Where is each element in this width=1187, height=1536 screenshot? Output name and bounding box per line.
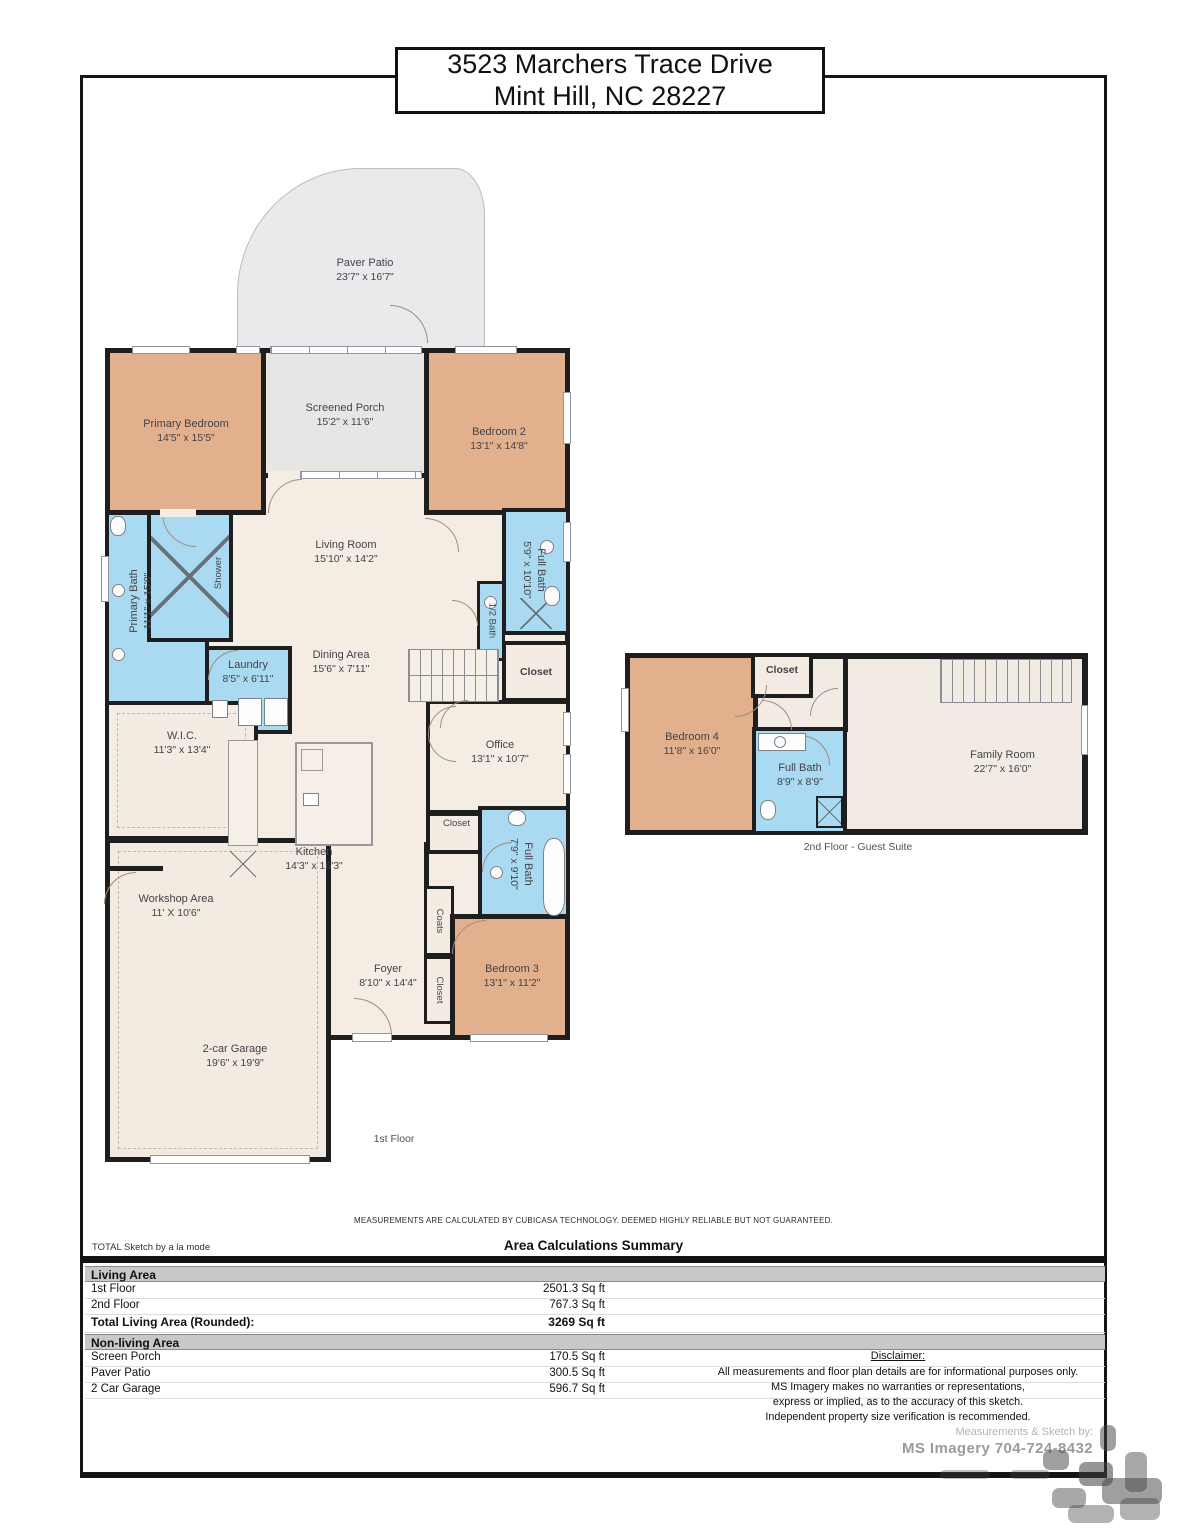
watermark-fragment xyxy=(1125,1452,1147,1492)
disclaimer-line: All measurements and floor plan details … xyxy=(700,1365,1096,1380)
sink xyxy=(774,736,786,748)
bathtub xyxy=(543,838,565,916)
disclaimer-line: express or implied, as to the accuracy o… xyxy=(700,1395,1096,1410)
label-foyer: Foyer 8'10" x 14'4" xyxy=(318,962,458,990)
front-door-opening xyxy=(352,1033,392,1042)
watermark-fragment xyxy=(1120,1498,1160,1520)
address-title-box: 3523 Marchers Trace Drive Mint Hill, NC … xyxy=(395,47,825,114)
window xyxy=(101,556,109,602)
label-full-bath-lower: Full Bath 7'9" x 9'10" xyxy=(507,808,535,920)
dryer xyxy=(264,698,288,726)
label-closet-hall: Closet xyxy=(502,666,570,680)
label-workshop: Workshop Area 11' X 10'6" xyxy=(106,892,246,920)
sink xyxy=(112,584,125,597)
disclaimer-line: Independent property size verification i… xyxy=(700,1410,1096,1425)
label-living-room: Living Room 15'10" x 14'2" xyxy=(276,538,416,566)
label-full-bath-upper: Full Bath 5'9" x 10'10" xyxy=(520,512,548,628)
label-first-floor: 1st Floor xyxy=(352,1133,436,1147)
watermark-fragment xyxy=(1068,1505,1114,1523)
label-laundry: Laundry 8'5" x 6'11" xyxy=(208,658,288,686)
door-gap xyxy=(422,520,430,556)
label-screened-porch: Screened Porch 15'2" x 11'6" xyxy=(275,401,415,429)
label-bedroom-4: Bedroom 4 11'8" x 16'0" xyxy=(628,730,756,758)
label-paver-patio: Paver Patio 23'7" x 16'7" xyxy=(280,256,450,284)
floorplan-sheet: 3523 Marchers Trace Drive Mint Hill, NC … xyxy=(0,0,1187,1536)
credit-value: MS Imagery 704-724-8432 xyxy=(700,1440,1093,1457)
window xyxy=(470,1034,548,1042)
stair-rail xyxy=(410,675,497,676)
label-closet-2nd: Closet xyxy=(751,664,813,678)
label-closet-office: Closet xyxy=(426,818,487,831)
window xyxy=(1081,705,1088,755)
watermark-fragment xyxy=(940,1470,990,1479)
window xyxy=(621,688,629,732)
watermark-fragment xyxy=(1043,1450,1069,1470)
laundry-sink xyxy=(212,700,228,718)
foyer-kitchen-wall xyxy=(424,842,429,888)
staircase-second-floor xyxy=(940,659,1072,703)
nonliving-area-header: Non-living Area xyxy=(85,1334,1105,1350)
toilet xyxy=(760,800,776,820)
island-cooktop xyxy=(301,749,323,771)
disclaimer-line: MS Imagery makes no warranties or repres… xyxy=(700,1380,1096,1395)
sink xyxy=(490,866,503,879)
window xyxy=(236,346,260,354)
label-primary-bedroom: Primary Bedroom 14'5" x 15'5" xyxy=(116,417,256,445)
label-office: Office 13'1" x 10'7" xyxy=(430,738,570,766)
window xyxy=(563,522,571,562)
table-row-total: Total Living Area (Rounded): 3269 Sq ft xyxy=(85,1314,1105,1333)
workshop-wall-stub xyxy=(105,866,163,871)
table-row: 2nd Floor 767.3 Sq ft xyxy=(85,1298,1105,1315)
label-coats: Coats xyxy=(433,889,445,953)
toilet xyxy=(110,516,126,536)
disclaimer-block: Disclaimer: All measurements and floor p… xyxy=(700,1350,1096,1425)
cubicasa-note: MEASUREMENTS ARE CALCULATED BY CUBICASA … xyxy=(80,1216,1107,1225)
label-garage: 2-car Garage 19'6" x 19'9" xyxy=(165,1042,305,1070)
table-row: 1st Floor 2501.3 Sq ft xyxy=(85,1282,1105,1299)
hall-family-wall xyxy=(843,658,848,732)
label-second-floor: 2nd Floor - Guest Suite xyxy=(738,841,978,855)
credit-label: Measurements & Sketch by: xyxy=(700,1426,1093,1438)
label-wic: W.I.C. 11'3" x 13'4" xyxy=(112,729,252,757)
disclaimer-heading: Disclaimer: xyxy=(700,1350,1096,1362)
window xyxy=(132,346,190,354)
label-family-room: Family Room 22'7" x 16'0" xyxy=(930,748,1075,776)
summary-heading: Area Calculations Summary xyxy=(80,1238,1107,1253)
label-shower: Shower xyxy=(213,537,225,609)
porch-window-band xyxy=(270,346,422,354)
watermark-fragment xyxy=(1010,1470,1050,1479)
door-gap xyxy=(160,509,196,517)
summary-rule xyxy=(80,1256,1107,1263)
bath-closet-x xyxy=(816,796,843,828)
washer xyxy=(238,698,262,726)
watermark-fragment xyxy=(1100,1425,1116,1451)
window xyxy=(455,346,517,354)
label-primary-bath: Primary Bath 11'1" x 15'8" xyxy=(127,542,155,660)
label-full-bath-2nd: Full Bath 8'9" x 8'9" xyxy=(757,761,843,789)
label-bedroom-3: Bedroom 3 13'1" x 11'2" xyxy=(442,962,582,990)
label-dining-area: Dining Area 15'6" x 7'11" xyxy=(271,648,411,676)
sink xyxy=(112,648,125,661)
porch-window-band xyxy=(300,471,422,479)
address-line-2: Mint Hill, NC 28227 xyxy=(494,81,727,113)
label-kitchen: Kitchen 14'3" x 16'3" xyxy=(244,845,384,873)
island-sink xyxy=(303,793,319,806)
door-gap xyxy=(268,471,302,479)
label-half-bath: 1/2 Bath xyxy=(485,583,498,659)
address-line-1: 3523 Marchers Trace Drive xyxy=(447,49,773,81)
garage-door xyxy=(150,1155,310,1164)
label-bedroom-2: Bedroom 2 13'1" x 14'8" xyxy=(429,425,569,453)
living-area-header: Living Area xyxy=(85,1266,1105,1282)
